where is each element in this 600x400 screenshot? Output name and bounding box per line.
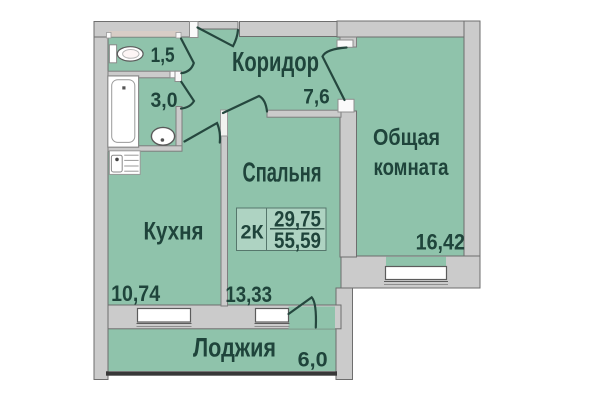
svg-text:13,33: 13,33	[225, 282, 272, 307]
svg-text:Кухня: Кухня	[144, 218, 204, 246]
svg-text:6,0: 6,0	[298, 349, 328, 372]
svg-text:Спальня: Спальня	[243, 157, 322, 188]
svg-text:16,42: 16,42	[416, 229, 465, 254]
svg-text:10,74: 10,74	[111, 281, 161, 306]
svg-text:Лоджия: Лоджия	[193, 333, 276, 363]
svg-text:3,0: 3,0	[151, 89, 178, 112]
svg-text:комната: комната	[374, 154, 450, 180]
svg-text:55,59: 55,59	[274, 228, 321, 253]
svg-text:1,5: 1,5	[151, 44, 175, 67]
svg-text:2К: 2К	[241, 223, 264, 244]
svg-text:Коридор: Коридор	[232, 46, 319, 77]
svg-text:Общая: Общая	[373, 124, 440, 150]
svg-text:7,6: 7,6	[303, 85, 330, 108]
